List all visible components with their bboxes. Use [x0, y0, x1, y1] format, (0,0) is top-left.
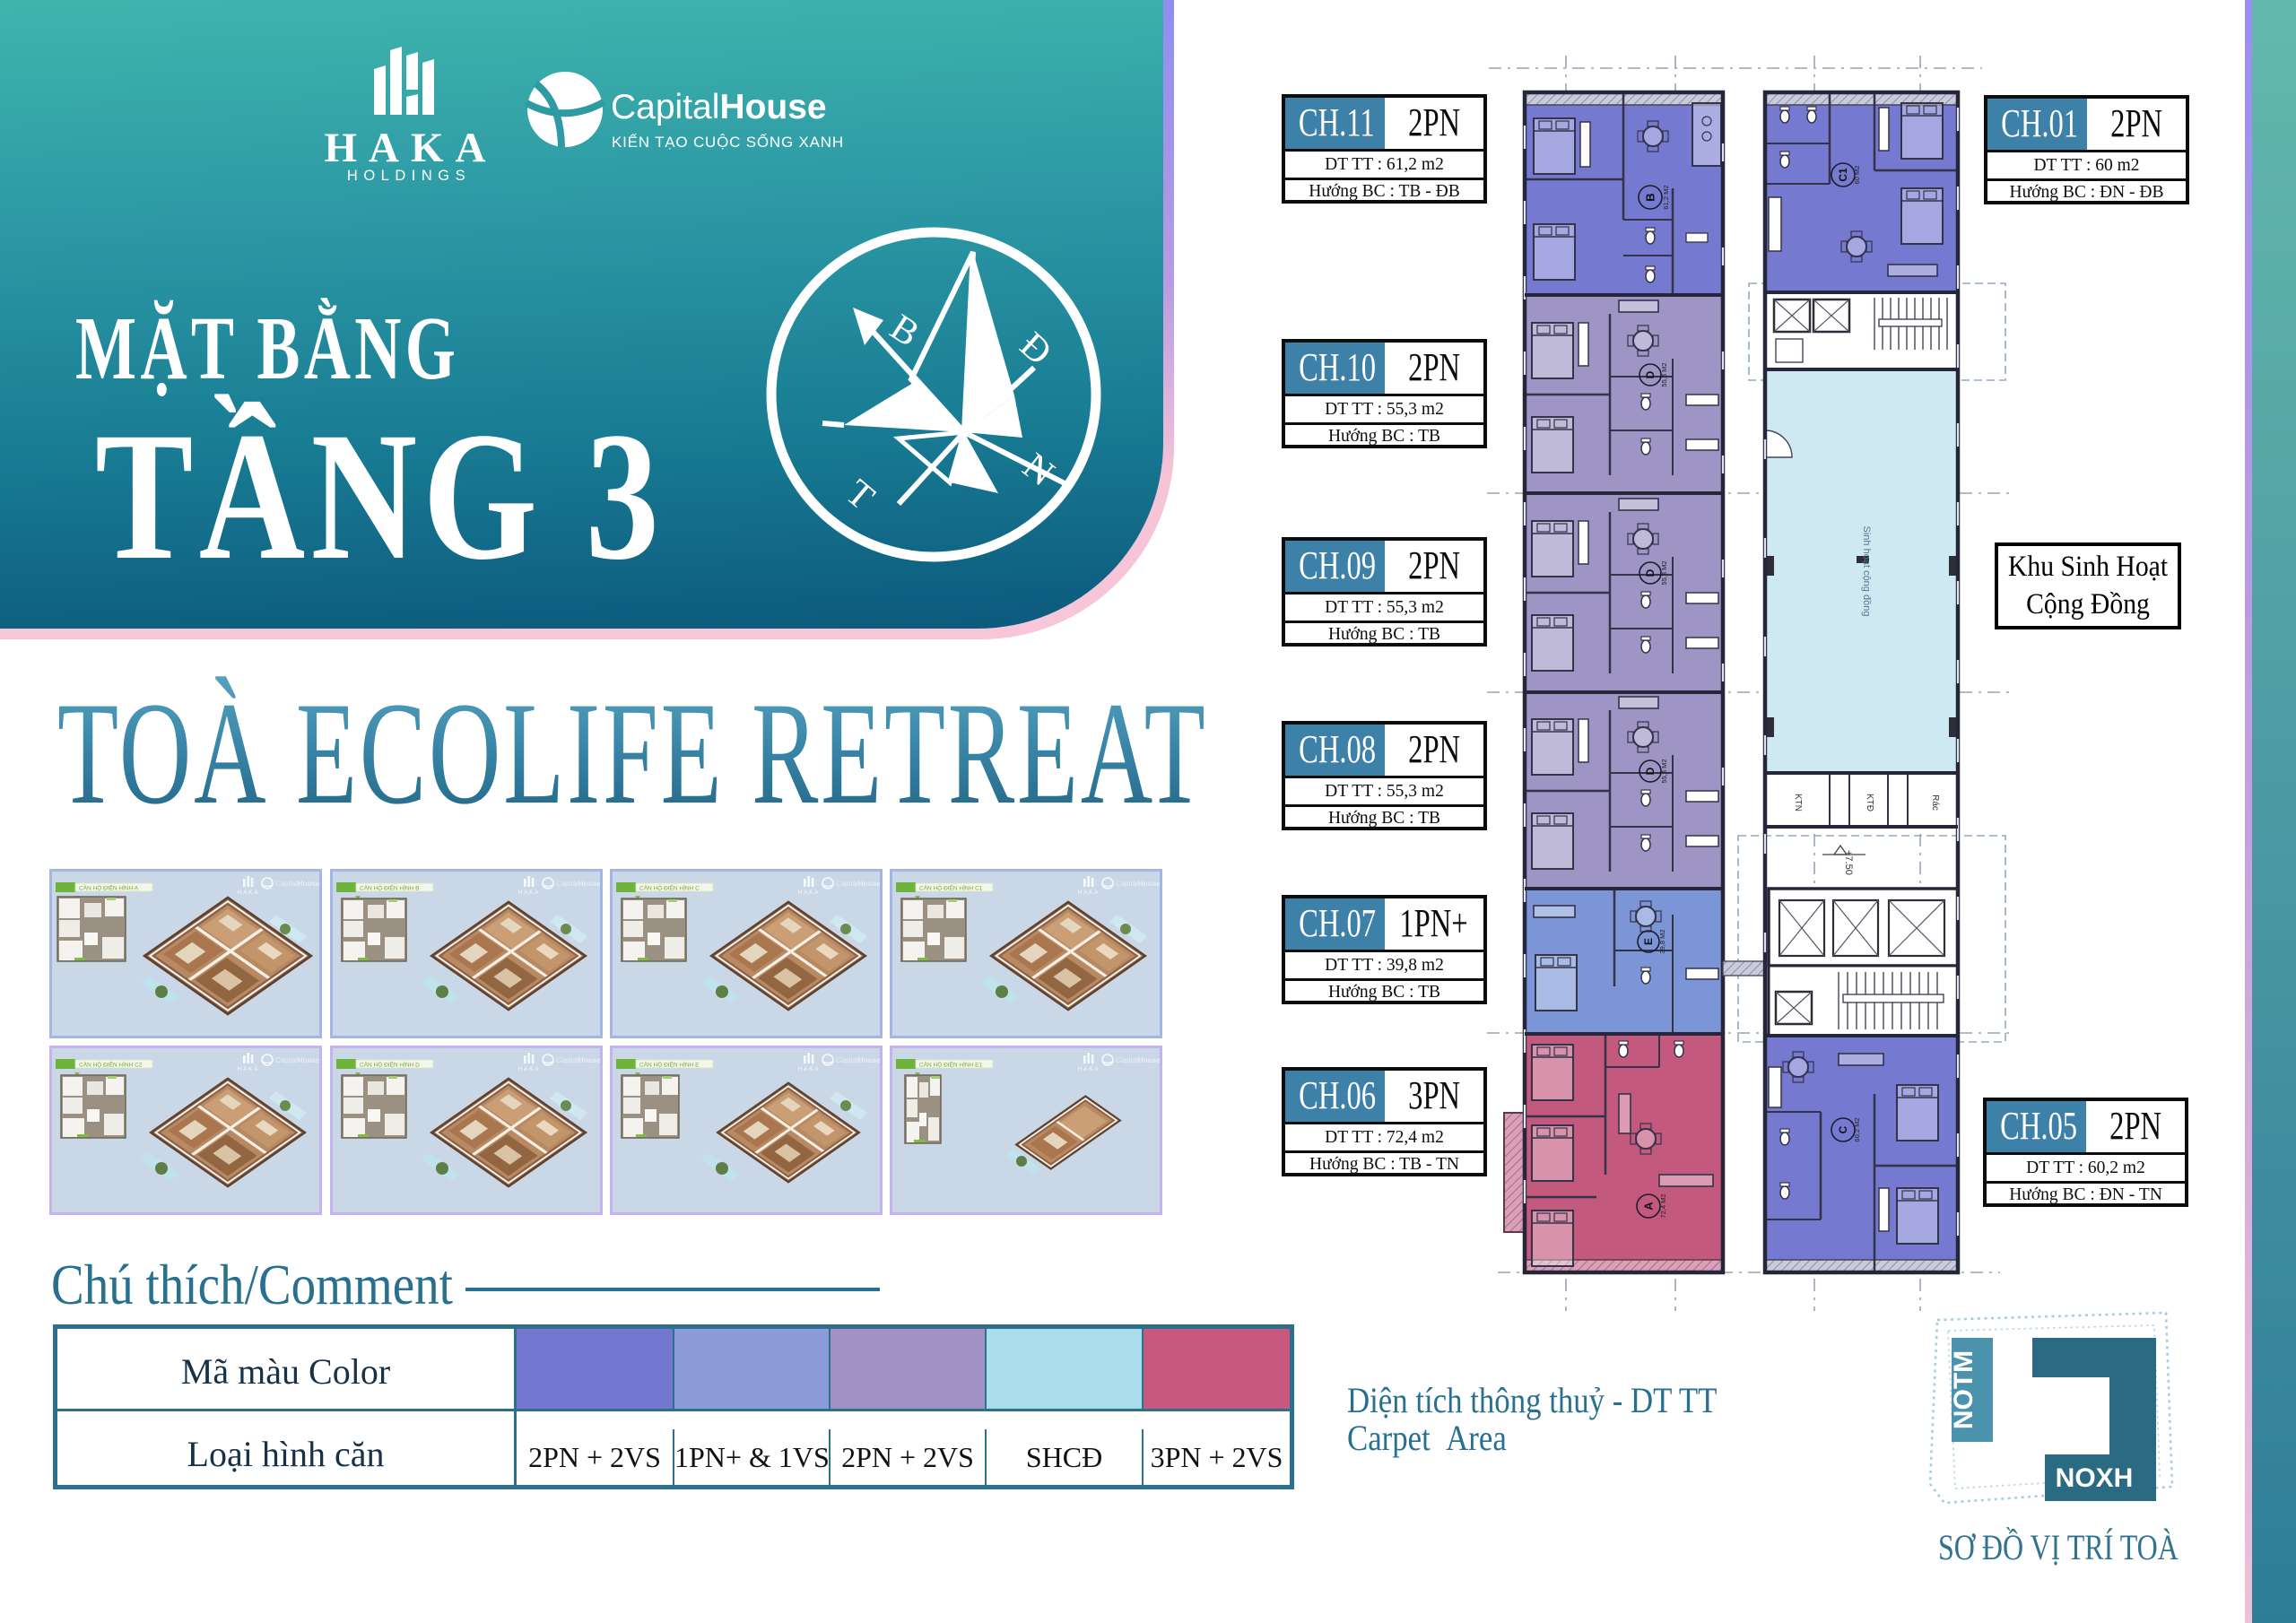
svg-text:HAKA: HAKA: [238, 1066, 260, 1072]
svg-text:39,8 M2: 39,8 M2: [1658, 929, 1666, 953]
svg-text:CapitalHouse: CapitalHouse: [275, 1056, 319, 1064]
svg-text:CĂN HỘ ĐIỂN HÌNH D: CĂN HỘ ĐIỂN HÌNH D: [360, 1061, 420, 1069]
svg-text:CapitalHouse: CapitalHouse: [275, 880, 319, 888]
svg-text:CapitalHouse: CapitalHouse: [836, 1056, 880, 1064]
svg-text:CapitalHouse: CapitalHouse: [611, 88, 827, 126]
svg-text:55,3 M2: 55,3 M2: [1660, 362, 1668, 386]
svg-text:KTĐ: KTĐ: [1865, 794, 1874, 811]
svg-text:+7.50: +7.50: [1843, 850, 1854, 875]
svg-text:N: N: [1014, 446, 1061, 495]
svg-text:CĂN HỘ ĐIỂN HÌNH E: CĂN HỘ ĐIỂN HÌNH E: [639, 1061, 700, 1069]
svg-text:Rác: Rác: [1930, 794, 1940, 811]
svg-text:CĂN HỘ ĐIỂN HÌNH B: CĂN HỘ ĐIỂN HÌNH B: [360, 884, 419, 892]
svg-text:CĂN HỘ ĐIỂN HÌNH C2: CĂN HỘ ĐIỂN HÌNH C2: [79, 1061, 143, 1069]
svg-text:C1: C1: [1837, 168, 1849, 182]
svg-text:CapitalHouse: CapitalHouse: [556, 1056, 600, 1064]
svg-text:HAKA: HAKA: [518, 890, 541, 896]
svg-text:T: T: [838, 472, 882, 518]
svg-text:72,4 M2: 72,4 M2: [1659, 1193, 1667, 1218]
svg-text:CĂN HỘ ĐIỂN HÌNH A: CĂN HỘ ĐIỂN HÌNH A: [79, 884, 139, 892]
svg-text:60 M2: 60 M2: [1853, 166, 1861, 185]
svg-text:Sinh hoạt cộng đồng: Sinh hoạt cộng đồng: [1861, 526, 1872, 617]
svg-text:CĂN HỘ ĐIỂN HÌNH E1: CĂN HỘ ĐIỂN HÌNH E1: [919, 1061, 982, 1069]
svg-text:CĂN HỘ ĐIỂN HÌNH C: CĂN HỘ ĐIỂN HÌNH C: [639, 884, 700, 892]
svg-text:HAKA: HAKA: [238, 890, 260, 896]
svg-text:HOLDINGS: HOLDINGS: [347, 168, 471, 184]
svg-text:HAKA: HAKA: [325, 125, 498, 171]
svg-text:C: C: [1837, 1125, 1849, 1133]
svg-text:CapitalHouse: CapitalHouse: [1116, 1056, 1160, 1064]
svg-text:CapitalHouse: CapitalHouse: [556, 880, 600, 888]
svg-text:KTN: KTN: [1793, 794, 1803, 811]
svg-text:NOTM: NOTM: [1949, 1350, 1979, 1429]
svg-text:60,2 M2: 60,2 M2: [1853, 1117, 1861, 1141]
svg-text:61,2 M2: 61,2 M2: [1662, 185, 1670, 209]
svg-text:CapitalHouse: CapitalHouse: [836, 880, 880, 888]
svg-text:HAKA: HAKA: [798, 1066, 821, 1072]
svg-text:HAKA: HAKA: [1078, 890, 1100, 896]
svg-text:CapitalHouse: CapitalHouse: [1116, 880, 1160, 888]
svg-text:D: D: [1644, 370, 1657, 378]
svg-text:HAKA: HAKA: [1078, 1066, 1100, 1072]
svg-text:B: B: [1644, 193, 1657, 201]
svg-text:E: E: [1642, 938, 1655, 945]
svg-text:HAKA: HAKA: [518, 1066, 541, 1072]
svg-text:NOXH: NOXH: [2056, 1463, 2134, 1493]
svg-text:HAKA: HAKA: [798, 890, 821, 896]
svg-text:Đ: Đ: [1012, 325, 1059, 373]
svg-text:KIẾN TẠO CUỘC SỐNG XANH: KIẾN TẠO CUỘC SỐNG XANH: [612, 133, 844, 151]
svg-text:CĂN HỘ ĐIỂN HÌNH C1: CĂN HỘ ĐIỂN HÌNH C1: [919, 884, 983, 892]
svg-text:A: A: [1642, 1202, 1656, 1211]
